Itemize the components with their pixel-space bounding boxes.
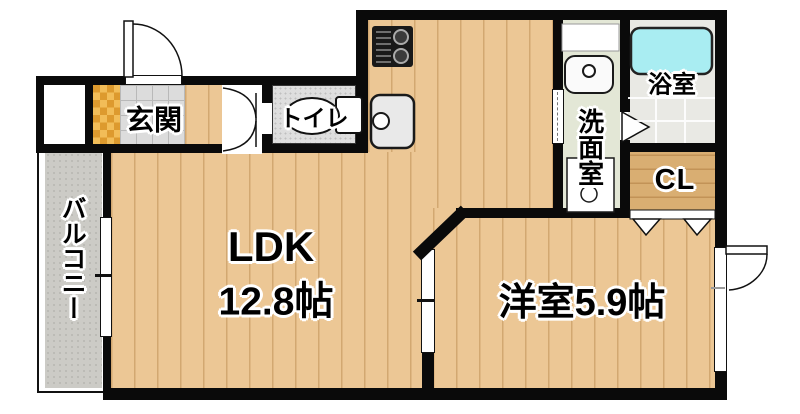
wall [103,152,111,217]
wall [36,76,44,152]
western-room-door-icon [726,246,767,290]
sliding-door-divider [417,299,435,302]
wall [182,76,368,85]
wall [85,76,93,152]
wall [262,134,272,153]
toilet-door-opening [262,103,272,134]
western-room-window-divider [711,287,725,289]
wall [262,144,368,153]
balcony-label: バルコニー [59,196,85,321]
ldk-floor [111,152,433,388]
wall [620,20,630,112]
meter-box [44,85,85,144]
wall [262,85,272,103]
entrance-door-icon [124,21,182,77]
wall [456,208,630,218]
washroom-sliding-door [552,89,564,144]
balcony-window [100,217,112,337]
washroom-door-track [557,92,558,141]
wall [553,143,563,215]
floor-plan: LDK 12.8帖 洋室5.9帖 玄関 トイレ 浴室 洗面室 CL バルコニー [0,0,800,414]
wall [553,20,563,90]
wall [715,10,727,248]
entrance-door-threshold [125,75,182,85]
wall [36,144,222,153]
bath-label: 浴室 [648,72,696,97]
western-room-window [714,247,727,372]
closet-label: CL [655,165,696,195]
entrance-mat [93,85,120,144]
wall [36,76,125,85]
wall [356,10,727,20]
entrance-label: 玄関 [126,105,182,134]
ldk-label: LDK [228,225,314,269]
washroom-label: 洗面室 [575,108,602,186]
wall [103,337,111,388]
toilet-door-alcove [222,85,262,154]
wall [356,10,368,153]
balcony-window-divider [95,274,111,277]
western-room-label: 洋室5.9帖 [499,284,666,324]
wall [103,388,727,400]
hallway-floor [185,85,222,144]
ldk-size-label: 12.8帖 [219,283,334,324]
toilet-label: トイレ [280,106,349,130]
wall [422,353,434,388]
wall [620,143,727,152]
